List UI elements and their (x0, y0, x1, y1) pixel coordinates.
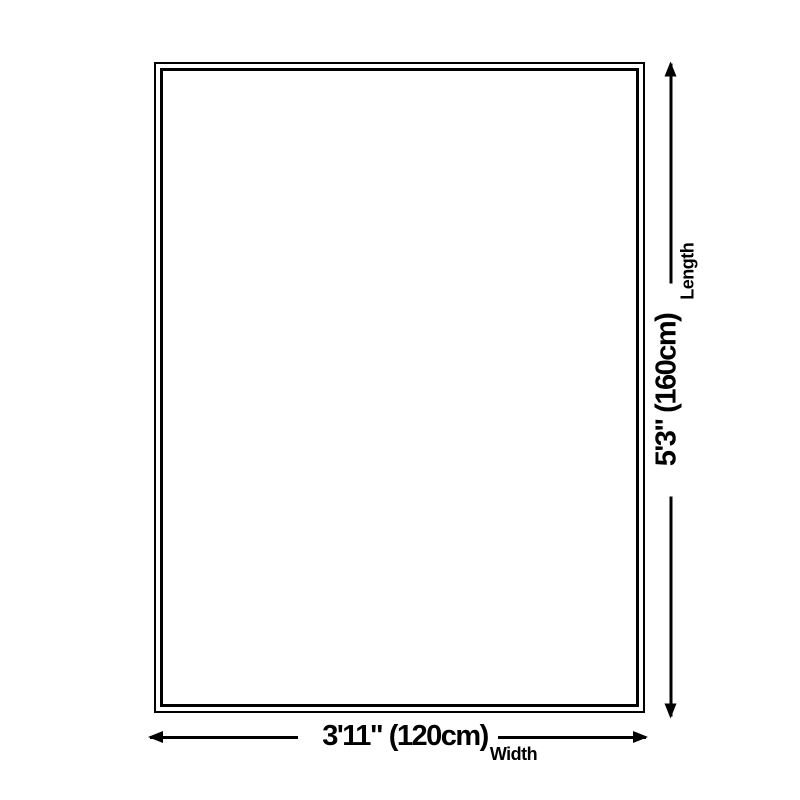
product-outline (154, 62, 645, 713)
width-dimension-line-right: Width (498, 736, 646, 739)
length-dimension-line-top: Length (669, 63, 672, 283)
width-dimension-line-left (150, 736, 298, 739)
width-dimension: 3'11" (120cm) Width (150, 715, 646, 759)
width-label: Width (490, 744, 537, 765)
arrow-down-icon (664, 703, 676, 718)
arrow-right-icon (633, 731, 648, 743)
length-value: 5'3" (160cm) (651, 313, 683, 466)
width-value: 3'11" (120cm) (322, 721, 488, 753)
arrow-up-icon (664, 61, 676, 76)
arrow-left-icon (148, 731, 163, 743)
length-dimension: 5'3" (160cm) Length (648, 63, 692, 716)
length-dimension-line-bottom (669, 496, 672, 716)
product-outline-inner-border (160, 68, 639, 707)
length-label: Length (677, 242, 698, 299)
